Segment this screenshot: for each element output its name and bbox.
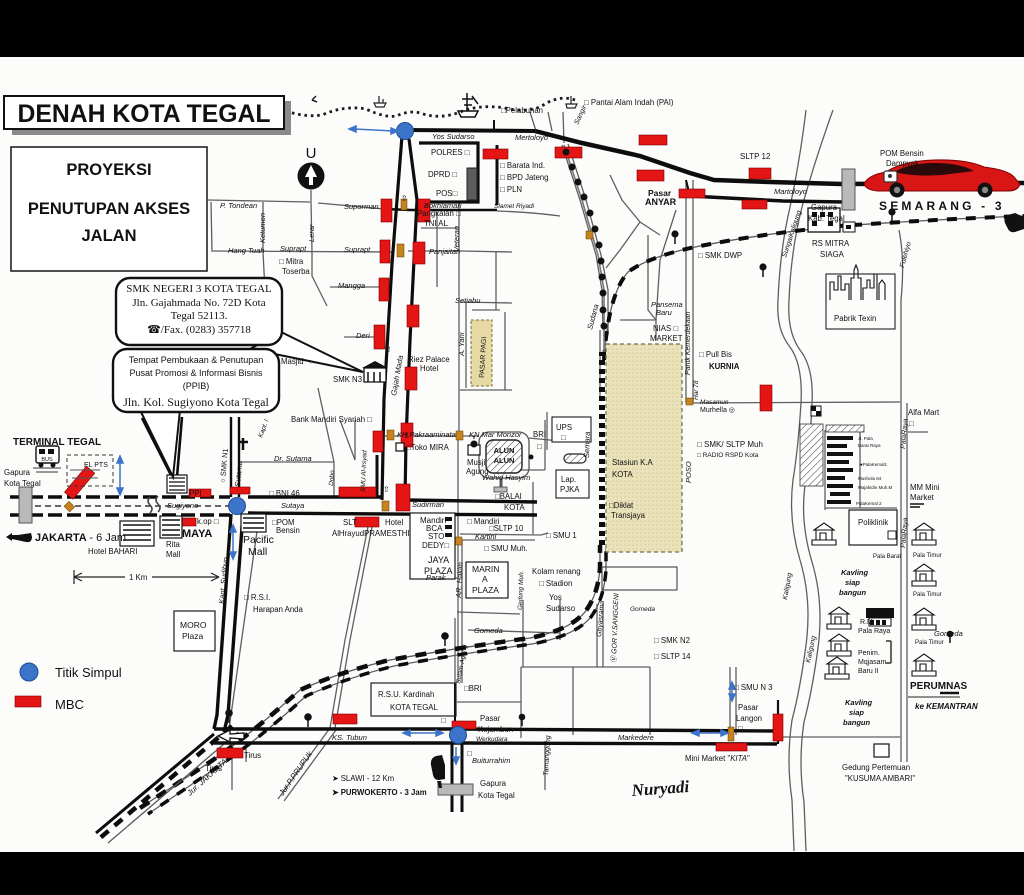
svg-text:Pangkalan □: Pangkalan □: [417, 209, 461, 218]
svg-text:(PPIB): (PPIB): [183, 381, 210, 391]
svg-text:siap: siap: [849, 708, 864, 717]
svg-text:□ SMK DWP: □ SMK DWP: [698, 251, 742, 260]
svg-text:PROYEKSI: PROYEKSI: [66, 161, 151, 179]
svg-text:Baru: Baru: [656, 308, 673, 317]
svg-text:□: □: [441, 716, 446, 725]
svg-text:Mall: Mall: [248, 546, 267, 558]
svg-text:R.M: R.M: [860, 619, 873, 626]
svg-text:ke KEMANTRAN: ke KEMANTRAN: [915, 702, 978, 711]
svg-text:□ SMU N 3: □ SMU N 3: [734, 683, 773, 692]
svg-text:Gapura: Gapura: [480, 779, 507, 788]
svg-text:□ SMU Muh.: □ SMU Muh.: [484, 544, 528, 553]
svg-text:AR. Hakim: AR. Hakim: [454, 562, 465, 599]
svg-text:Pala Raya: Pala Raya: [858, 628, 890, 635]
svg-text:Market: Market: [910, 493, 935, 502]
svg-text:Dr. Sutama: Dr. Sutama: [274, 454, 312, 463]
svg-text:Buiturrahim: Buiturrahim: [472, 756, 510, 765]
svg-text:KN Mar Monzor: KN Mar Monzor: [469, 430, 522, 439]
svg-text:Gapura: Gapura: [811, 203, 838, 212]
svg-text:Martoloyo: Martoloyo: [774, 187, 807, 196]
svg-text:UPS: UPS: [556, 423, 572, 432]
svg-text:□ Stadion: □ Stadion: [539, 579, 572, 588]
svg-text:Pacific: Pacific: [243, 534, 274, 546]
svg-text:Kavling: Kavling: [845, 698, 873, 707]
svg-text:□ PLN: □ PLN: [500, 185, 522, 194]
svg-text:POLRES □: POLRES □: [431, 148, 470, 157]
svg-text:□ Mitra: □ Mitra: [279, 257, 304, 266]
svg-text:MARIN: MARIN: [472, 564, 499, 574]
svg-text:RS MITRA: RS MITRA: [812, 239, 850, 248]
svg-text:Harapan Anda: Harapan Anda: [253, 605, 304, 614]
svg-text:PLAZA: PLAZA: [472, 585, 499, 595]
svg-text:KOTA TEGAL: KOTA TEGAL: [390, 703, 438, 712]
svg-text:Sutaya: Sutaya: [281, 501, 304, 510]
svg-text:Lap.: Lap.: [561, 475, 576, 484]
svg-text:Gedung Muh.: Gedung Muh.: [517, 570, 525, 610]
svg-text:Deri: Deri: [356, 331, 370, 340]
svg-text:□ R.S.I.: □ R.S.I.: [244, 593, 270, 602]
svg-text:□BALAI: □BALAI: [495, 492, 522, 501]
svg-text:Slamet Riyadi: Slamet Riyadi: [494, 203, 535, 210]
svg-text:Agung: Agung: [466, 467, 489, 476]
svg-text:□ RADIO RSPD Kota: □ RADIO RSPD Kota: [697, 452, 759, 459]
svg-text:Transjaya: Transjaya: [611, 511, 646, 520]
svg-text:Tegal 52113.: Tegal 52113.: [171, 310, 228, 322]
svg-text:Sudirman: Sudirman: [412, 500, 444, 509]
svg-text:Gomeda: Gomeda: [474, 626, 503, 635]
svg-text:Kota Tegal: Kota Tegal: [478, 791, 515, 800]
svg-text:Werkudara: Werkudara: [476, 736, 508, 743]
svg-text:ALUN: ALUN: [494, 446, 515, 455]
svg-text:bangun: bangun: [839, 588, 866, 597]
svg-text:SEMARANG - 3: SEMARANG - 3: [879, 199, 1005, 213]
svg-text:Lerar: Lerar: [307, 224, 316, 242]
svg-text:Jln. Gajahmada No. 72D Kota: Jln. Gajahmada No. 72D Kota: [132, 297, 265, 309]
svg-text:Masjid: Masjid: [281, 357, 304, 366]
svg-text:U: U: [306, 145, 317, 162]
svg-text:□BRI: □BRI: [464, 684, 482, 693]
svg-text:Bank Mandiri Syariah □: Bank Mandiri Syariah □: [291, 415, 372, 424]
svg-text:KOTA: KOTA: [612, 470, 633, 479]
svg-text:Pala Timur: Pala Timur: [915, 640, 944, 646]
svg-text:KH.Pakraaminata: KH.Pakraaminata: [397, 430, 456, 439]
svg-text:KOTA: KOTA: [504, 503, 525, 512]
svg-text:Markedere: Markedere: [618, 733, 654, 742]
svg-text:□ BNI 46: □ BNI 46: [269, 489, 300, 498]
svg-text:R.S.U. Kardinah: R.S.U. Kardinah: [378, 690, 434, 699]
svg-text:Penim.: Penim.: [858, 650, 880, 657]
svg-text:Mqjasam: Mqjasam: [858, 659, 887, 666]
svg-text:A: A: [482, 574, 488, 584]
svg-text:Alfa Mart: Alfa Mart: [908, 408, 940, 417]
svg-text:Tirus: Tirus: [244, 751, 261, 760]
svg-text:Suprapt: Suprapt: [344, 245, 371, 254]
svg-text:PPI: PPI: [189, 489, 202, 498]
svg-text:Wahid Hasyim: Wahid Hasyim: [482, 473, 530, 482]
svg-text:POS□: POS□: [436, 189, 457, 198]
svg-text:DENAH KOTA TEGAL: DENAH KOTA TEGAL: [18, 100, 271, 128]
svg-text:SIAGA: SIAGA: [820, 250, 845, 259]
svg-text:□: □: [738, 724, 743, 733]
svg-text:DPRD □: DPRD □: [428, 170, 457, 179]
svg-text:Parak: Parak: [426, 573, 447, 582]
svg-text:Pasar: Pasar: [738, 703, 759, 712]
svg-text:Musji: Musji: [467, 458, 485, 467]
svg-text:MM Mini: MM Mini: [910, 483, 940, 492]
svg-text:Pasar: Pasar: [480, 714, 501, 723]
svg-text:Mangga: Mangga: [338, 281, 365, 290]
svg-text:Mertoloyo: Mertoloyo: [515, 133, 548, 142]
svg-text:Rita: Rita: [166, 540, 181, 549]
svg-text:MBC: MBC: [55, 697, 84, 712]
svg-text:Pusat Promosi & Informasi Bisn: Pusat Promosi & Informasi Bisnis: [129, 368, 263, 378]
svg-text:POSO: POSO: [684, 461, 693, 483]
svg-text:Pala Timur: Pala Timur: [913, 592, 942, 598]
svg-text:JAYA: JAYA: [428, 555, 449, 565]
svg-text:Veteran: Veteran: [452, 226, 461, 252]
svg-text:SLT: SLT: [343, 518, 357, 527]
svg-text:➤ SLAWI - 12 Km: ➤ SLAWI - 12 Km: [332, 774, 394, 783]
svg-text:⇧: ⇧: [383, 485, 390, 494]
svg-text:POM Bensin: POM Bensin: [880, 149, 924, 158]
svg-text:Kejambon: Kejambon: [478, 725, 513, 734]
svg-text:Setiabu: Setiabu: [455, 296, 481, 305]
svg-text:□ Pull Bis: □ Pull Bis: [699, 350, 732, 359]
svg-text:□: □: [561, 433, 566, 442]
svg-text:SMK N3: SMK N3: [333, 375, 362, 384]
svg-text:Majahidin Muh.M: Majahidin Muh.M: [858, 485, 893, 490]
svg-text:□ Pantai Alam Indah (PAI): □ Pantai Alam Indah (PAI): [584, 98, 674, 107]
svg-text:□ SLTP 14: □ SLTP 14: [654, 652, 691, 661]
svg-text:Dampyak: Dampyak: [886, 159, 919, 168]
svg-text:SLTP 12: SLTP 12: [740, 152, 771, 161]
svg-text:BRI: BRI: [533, 430, 546, 439]
svg-text:Kota Tegal: Kota Tegal: [4, 479, 41, 488]
svg-text:AlHrayudPRAMESTHI: AlHrayudPRAMESTHI: [332, 529, 410, 538]
svg-text:☎/Fax. (0283) 357718: ☎/Fax. (0283) 357718: [147, 324, 251, 336]
svg-text:PJKA: PJKA: [560, 485, 580, 494]
svg-text:□Diklat: □Diklat: [609, 501, 634, 510]
svg-text:Mall: Mall: [166, 550, 181, 559]
svg-text:Yos: Yos: [549, 593, 562, 602]
svg-text:Kavling: Kavling: [841, 568, 869, 577]
svg-text:Dobo: Dobo: [328, 470, 336, 486]
svg-text:Sudarso: Sudarso: [546, 604, 576, 613]
svg-text:MARKET: MARKET: [650, 334, 683, 343]
svg-text:Masamun: Masamun: [700, 399, 729, 406]
svg-text:Yos Sudarso: Yos Sudarso: [432, 132, 475, 141]
svg-text:JALAN: JALAN: [81, 227, 136, 245]
svg-text:Langon: Langon: [736, 714, 762, 723]
svg-text:□ SMU 1: □ SMU 1: [546, 531, 577, 540]
svg-text:□SLTP 10: □SLTP 10: [489, 524, 524, 533]
svg-text:Pala Timur: Pala Timur: [913, 553, 942, 559]
svg-text:□ SMK/ SLTP Muh: □ SMK/ SLTP Muh: [697, 440, 763, 449]
svg-text:□: □: [467, 749, 472, 758]
svg-text:A. Yani: A. Yani: [457, 332, 466, 357]
svg-text:bangun: bangun: [843, 718, 870, 727]
svg-text:Kartini: Kartini: [475, 532, 497, 541]
svg-text:Gomeda: Gomeda: [630, 606, 655, 613]
svg-text:Suprapt: Suprapt: [280, 244, 307, 253]
svg-text:Kab. Tegal: Kab. Tegal: [808, 214, 845, 223]
svg-text:Semara: Semara: [582, 432, 592, 459]
svg-text:Baru II: Baru II: [858, 668, 879, 675]
svg-text:Hotel: Hotel: [385, 518, 403, 527]
svg-text:⇧: ⇧: [401, 194, 408, 203]
svg-text:Poliklinik: Poliklinik: [858, 518, 888, 527]
svg-text:TNI AL: TNI AL: [424, 219, 448, 228]
svg-text:Plaza: Plaza: [182, 631, 204, 641]
svg-text:EL PTS: EL PTS: [84, 462, 108, 469]
svg-text:Pala Barat: Pala Barat: [873, 554, 901, 560]
svg-text:●PalaKemal1: ●PalaKemal1: [860, 462, 887, 467]
svg-text:KS. Tubun: KS. Tubun: [332, 733, 367, 742]
svg-text:Toserba: Toserba: [282, 267, 310, 276]
svg-text:DEDY□: DEDY□: [422, 541, 449, 550]
svg-text:Jl. Pala: Jl. Pala: [858, 436, 873, 441]
svg-text:PERUMNAS: PERUMNAS: [910, 681, 968, 692]
svg-text:⇧: ⇧: [385, 345, 392, 354]
svg-text:siap: siap: [845, 578, 860, 587]
svg-text:P. Tondean: P. Tondean: [220, 201, 257, 210]
svg-text:"KUSUMA AMBARI": "KUSUMA AMBARI": [845, 774, 915, 783]
svg-text:1 Km: 1 Km: [129, 573, 147, 582]
svg-text:Tirus: Tirus: [205, 764, 222, 773]
svg-text:Stasiun K.A: Stasiun K.A: [612, 458, 654, 467]
svg-text:Riez Palace: Riez Palace: [408, 355, 450, 364]
svg-text:SMU Al-Irsyad: SMU Al-Irsyad: [360, 450, 368, 492]
svg-text:Kolam renang: Kolam renang: [532, 567, 581, 576]
svg-text:Gapura: Gapura: [4, 468, 31, 477]
svg-text:ANYAR: ANYAR: [645, 197, 677, 207]
svg-text:□ SMK N2: □ SMK N2: [654, 636, 690, 645]
svg-text:Hotel: Hotel: [420, 364, 438, 373]
svg-text:Pantk Kemerdekaan: Pantk Kemerdekaan: [685, 311, 692, 375]
svg-text:TERMINAL TEGAL: TERMINAL TEGAL: [13, 437, 101, 448]
svg-text:Suporman: Suporman: [344, 202, 379, 211]
svg-text:□ Barata Ind.: □ Barata Ind.: [500, 161, 545, 170]
svg-text:□Toko MIRA: □Toko MIRA: [406, 443, 450, 452]
svg-text:MORO: MORO: [180, 620, 207, 630]
svg-text:NIAS □: NIAS □: [653, 324, 678, 333]
svg-text:SMK NEGERI 3 KOTA TEGAL: SMK NEGERI 3 KOTA TEGAL: [126, 283, 272, 295]
svg-text:STO: STO: [428, 532, 444, 541]
svg-text:Tempat Pembukaan & Penutupan: Tempat Pembukaan & Penutupan: [129, 355, 264, 365]
svg-text:Ketumen: Ketumen: [258, 213, 267, 243]
svg-text:Titik Simpul: Titik Simpul: [55, 665, 122, 680]
svg-text:k.op □: k.op □: [197, 517, 219, 526]
svg-text:□Pelabuhan: □Pelabuhan: [501, 106, 543, 115]
svg-text:➤ PURWOKERTO - 3 Jam: ➤ PURWOKERTO - 3 Jam: [332, 788, 427, 797]
svg-text:KURNIA: KURNIA: [709, 362, 740, 371]
svg-text:□ BPD Jateng: □ BPD Jateng: [500, 173, 548, 182]
svg-text:JAKARTA - 6 Jam: JAKARTA - 6 Jam: [35, 532, 126, 544]
svg-text:Jln. Kol. Sugiyono Kota Tegal: Jln. Kol. Sugiyono Kota Tegal: [123, 395, 269, 409]
svg-text:Sugiyono: Sugiyono: [167, 501, 198, 510]
svg-text:□: □: [537, 442, 542, 451]
svg-text:Barat Raya: Barat Raya: [858, 443, 881, 448]
svg-text:MAYA: MAYA: [182, 528, 212, 540]
svg-text:Gomeda: Gomeda: [934, 629, 963, 638]
svg-text:Murhella ◎: Murhella ◎: [700, 407, 735, 414]
svg-text:□: □: [909, 419, 914, 428]
svg-text:Pabrik Texin: Pabrik Texin: [834, 314, 876, 323]
svg-text:Hotel BAHARI: Hotel BAHARI: [88, 547, 137, 556]
svg-text:BUS: BUS: [41, 457, 53, 463]
svg-text:Mini Market "KITA": Mini Market "KITA": [685, 754, 750, 763]
svg-text:Gedung Pertemuan: Gedung Pertemuan: [842, 763, 910, 772]
svg-text:Hang Tuah: Hang Tuah: [228, 246, 265, 255]
svg-text:Har 78: Har 78: [693, 380, 700, 400]
svg-text:Mushola 84: Mushola 84: [858, 476, 882, 481]
svg-text:ALUN: ALUN: [494, 456, 515, 465]
svg-text:PalaKemal 2: PalaKemal 2: [856, 501, 882, 506]
svg-text:Bensin: Bensin: [276, 526, 300, 535]
svg-text:PENUTUPAN AKSES: PENUTUPAN AKSES: [28, 200, 190, 218]
